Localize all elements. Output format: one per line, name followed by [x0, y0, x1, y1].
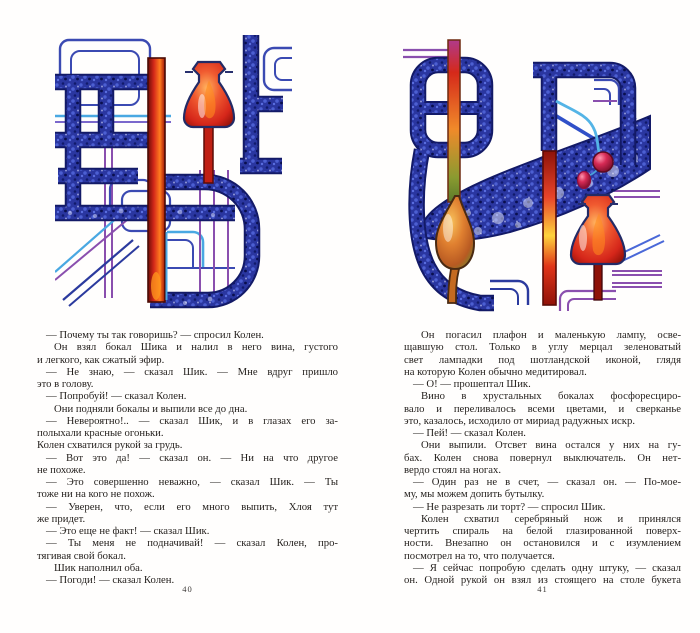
- text-line: — Один раз не в счет, — сказал он. — По-…: [404, 476, 681, 488]
- text-line: — Это совершенно неважно, — сказал Шик. …: [37, 476, 338, 488]
- text-line: тягивая свой бокал.: [37, 550, 338, 562]
- text-line: Колен схватился рукой за грудь.: [37, 439, 338, 451]
- illustration-left: [55, 10, 345, 320]
- right-page-text: Он погасил плафон и маленькую лампу, осв…: [404, 329, 681, 586]
- text-line: ности. Внезапно он остановился и с изумл…: [404, 537, 681, 549]
- cherry-ball: [593, 152, 613, 172]
- text-line: щавшую стол. Только в углу мерцал зелено…: [404, 341, 681, 353]
- text-line: Они подняли бокалы и выпили все до дна.: [37, 403, 338, 415]
- text-line: вердо стоял на ногах.: [404, 464, 681, 476]
- text-line: — Ты меня не подначивай! — сказал Колен,…: [37, 537, 338, 549]
- illustration-right: [398, 13, 670, 320]
- text-line: — Почему ты так говоришь? — спросил Коле…: [37, 329, 338, 341]
- red-pipe: [148, 58, 167, 302]
- text-line: чертить спираль на белой глазированной п…: [404, 525, 681, 537]
- pink-drop: [578, 172, 591, 189]
- text-line: Шик наполнил оба.: [37, 562, 338, 574]
- text-line: же придет.: [37, 513, 338, 525]
- text-line: это, казалось, исходило от мириад радужн…: [404, 415, 681, 427]
- text-line: вало и переливалось всеми цветами, и све…: [404, 403, 681, 415]
- orange-pipe: [448, 40, 460, 202]
- text-line: — О! — прошептал Шик.: [404, 378, 681, 390]
- text-line: полыхали красные огоньки.: [37, 427, 338, 439]
- flask: [571, 195, 625, 300]
- text-line: Колен схватил серебряный нож и принялся: [404, 513, 681, 525]
- left-page-text: — Почему ты так говоришь? — спросил Коле…: [37, 329, 338, 586]
- text-line: — Вот это да! — сказал он. — Ни на что д…: [37, 452, 338, 464]
- text-line: — Не разрезать ли торт? — спросил Шик.: [404, 501, 681, 513]
- text-line: — Невероятно!.. — сказал Шик, и в глазах…: [37, 415, 338, 427]
- flask-stem: [594, 264, 602, 300]
- text-line: это в голову.: [37, 378, 338, 390]
- text-line: Они выпили. Отсвет вина остался у них на…: [404, 439, 681, 451]
- text-line: Он взял бокал Шика и налил в него вина, …: [37, 341, 338, 353]
- book-spread: — Почему ты так говоришь? — спросил Коле…: [0, 0, 700, 633]
- text-line: и легкого, как сжатый эфир.: [37, 354, 338, 366]
- text-line: — Это еще не факт! — сказал Шик.: [37, 525, 338, 537]
- text-line: тоже ни на кого не похож.: [37, 488, 338, 500]
- right-page-number: 41: [404, 584, 681, 594]
- text-line: — Не знаю, — сказал Шик. — Мне вдруг при…: [37, 366, 338, 378]
- text-line: — Пей! — сказал Колен.: [404, 427, 681, 439]
- text-line: посмотрел на то, что получается.: [404, 550, 681, 562]
- text-line: — Уверен, что, если его много выпить, Хл…: [37, 501, 338, 513]
- thick-pipes-left: [55, 35, 283, 300]
- text-line: на которую Колен обычно медитировал.: [404, 366, 681, 378]
- left-page-number: 40: [37, 584, 338, 594]
- text-line: не похоже.: [37, 464, 338, 476]
- red-column-pipe: [543, 151, 556, 305]
- text-line: Вино в хрустальных бокалах фосфоресциро-: [404, 390, 681, 402]
- retort-bulb: [436, 40, 474, 303]
- text-line: бах. Колен снова повернул выключатель. О…: [404, 452, 681, 464]
- flask: [184, 62, 234, 183]
- text-line: — Я сейчас попробую сделать одну штуку, …: [404, 562, 681, 574]
- text-line: — Попробуй! — сказал Колен.: [37, 390, 338, 402]
- text-line: Он погасил плафон и маленькую лампу, осв…: [404, 329, 681, 341]
- text-line: му, мы можем допить бутылку.: [404, 488, 681, 500]
- flask-stem: [204, 127, 213, 183]
- text-line: свет лампадки под шотландской иконой, гл…: [404, 354, 681, 366]
